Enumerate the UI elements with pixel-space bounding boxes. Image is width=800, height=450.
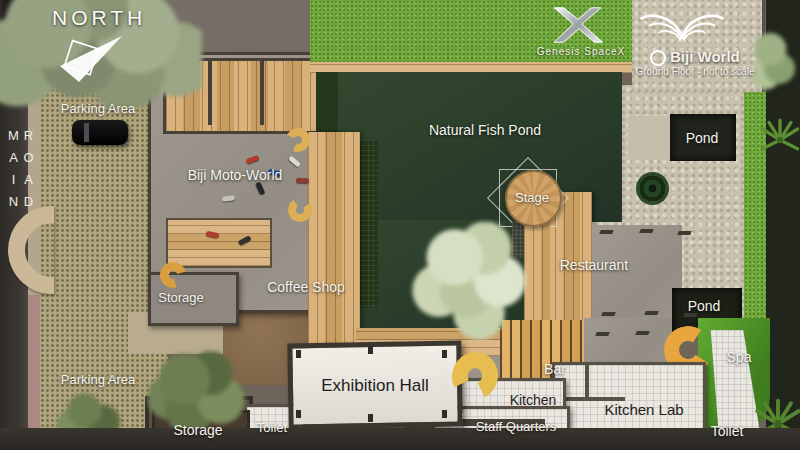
shrub — [752, 30, 798, 94]
storage-bottom-label: Storage — [162, 422, 234, 438]
tree — [412, 222, 534, 340]
bench — [639, 229, 654, 233]
north-compass-icon — [48, 30, 132, 88]
pond-top-deck — [628, 116, 672, 160]
exhibition-hall-label: Exhibition Hall — [300, 376, 450, 396]
moto-world-label: Biji Moto-World — [178, 167, 292, 183]
bench — [595, 332, 610, 336]
hall-post — [296, 410, 301, 418]
bar-label: Bar — [538, 361, 572, 377]
motorcycle — [296, 178, 309, 183]
parking-area-top-label: Parking Area — [50, 101, 146, 116]
stage-label: Stage — [506, 190, 558, 205]
hall-post — [442, 350, 447, 358]
toilet-left-label: Toilet — [246, 420, 298, 435]
genesis-name: Genesis SpaceX — [536, 46, 626, 57]
bench — [599, 230, 614, 234]
hall-post — [442, 410, 447, 418]
kitchen-lab-label: Kitchen Lab — [594, 401, 694, 418]
fountain — [636, 172, 669, 205]
fish-pond-label: Natural Fish Pond — [418, 122, 552, 138]
boardwalk-left — [308, 132, 360, 354]
garden-bed — [358, 140, 378, 308]
main-road-label: MAIN ROAD — [6, 128, 36, 308]
bottom-road-surface — [0, 428, 800, 450]
kitchen-label: Kitchen — [500, 392, 566, 408]
floor-plan: NORTH MAIN ROAD Genesis SpaceX Biji Worl… — [0, 0, 800, 450]
pond-top-label: Pond — [678, 130, 726, 146]
spa-label: Spa — [718, 349, 760, 365]
bench — [644, 311, 659, 315]
moto-display-platform — [166, 218, 272, 268]
toilet-right-label: Toilet — [700, 423, 754, 439]
hall-post — [368, 414, 373, 422]
hall-post — [296, 350, 301, 358]
room-divider — [260, 61, 264, 125]
storage-mid-label: Storage — [150, 290, 212, 305]
car — [72, 120, 128, 145]
room-divider — [585, 365, 589, 399]
hall-post — [368, 346, 373, 354]
north-label: NORTH — [52, 6, 146, 30]
restaurant-floor — [592, 225, 682, 333]
staff-quarters-label: Staff Quarters — [462, 419, 570, 434]
pond-bottom-label: Pond — [680, 298, 728, 314]
biji-name: Biji World — [670, 48, 740, 65]
bench — [635, 331, 650, 335]
biji-wings-icon — [638, 10, 726, 46]
bench — [677, 231, 692, 235]
genesis-x-logo-icon — [546, 4, 610, 46]
room-divider — [208, 61, 212, 125]
biji-circle-icon — [650, 50, 666, 66]
bench — [601, 312, 616, 316]
palm-tree-icon — [758, 118, 800, 162]
biji-subtitle: Ground Floor - not to scale — [628, 66, 762, 77]
curb-left-lower — [28, 295, 40, 450]
car-windshield — [84, 123, 89, 142]
restaurant-label: Restaurant — [550, 257, 638, 273]
parking-area-bottom-label: Parking Area — [50, 372, 146, 387]
coffee-shop-label: Coffee Shop — [258, 279, 354, 295]
